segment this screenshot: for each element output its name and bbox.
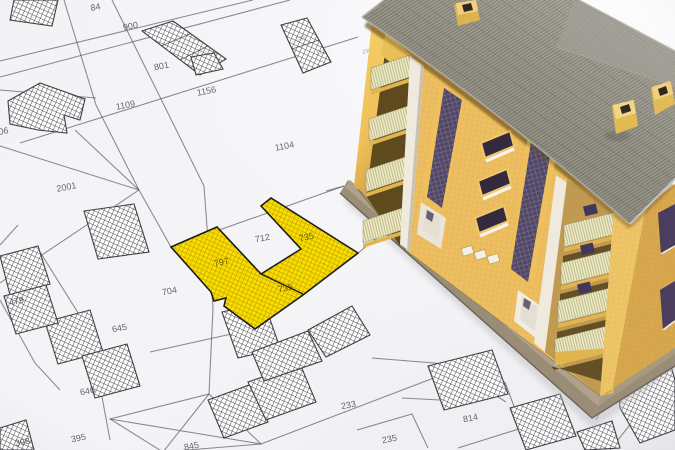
svg-text:845: 845 <box>183 440 200 450</box>
svg-text:84: 84 <box>90 1 102 13</box>
